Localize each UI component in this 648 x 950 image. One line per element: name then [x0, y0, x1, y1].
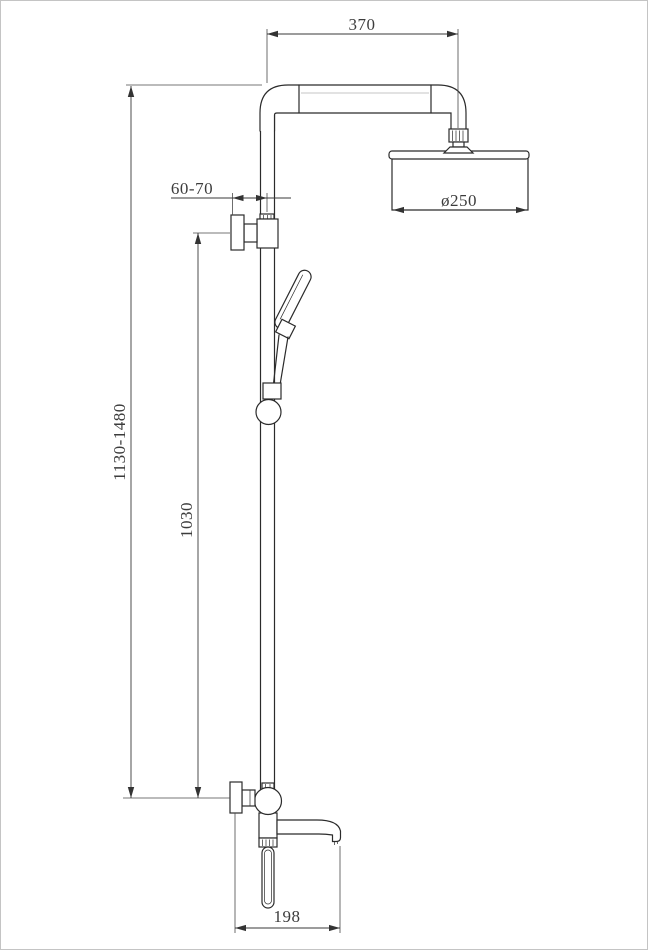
dim-label-head-diameter: ø250	[441, 191, 477, 210]
mixer-handle	[262, 847, 274, 908]
bracket-flange	[231, 215, 244, 250]
hand-shower-wand	[273, 268, 314, 331]
tub-spout	[277, 820, 341, 842]
bracket-connector	[244, 224, 257, 242]
technical-drawing-page: 370 ø250 60-70 1130-1480 1030	[0, 0, 648, 950]
dim-label-overall-height: 1130-1480	[110, 403, 129, 481]
dim-label-bar-height: 1030	[177, 502, 196, 538]
arm-connector-nut	[449, 129, 468, 147]
hand-shower	[272, 268, 313, 397]
bracket-body	[257, 219, 278, 248]
spout-knurl-nut	[259, 838, 277, 847]
shower-system-drawing: 370 ø250 60-70 1130-1480 1030	[1, 1, 648, 950]
bracket-knurl	[260, 214, 274, 219]
connector-nut	[449, 129, 468, 142]
upper-wall-bracket	[231, 214, 278, 250]
slider-knob-wheel	[256, 400, 281, 425]
head-cone	[444, 147, 473, 153]
valve-body	[259, 813, 277, 838]
dimension-bar-height: 1030	[177, 233, 230, 798]
connector-collar	[453, 142, 464, 147]
mixer-assembly	[230, 782, 341, 908]
dim-label-spout-length: 198	[274, 907, 301, 926]
shower-arm-body	[260, 85, 466, 131]
slider-cup	[263, 383, 281, 399]
dim-label-wall-distance: 60-70	[171, 179, 213, 198]
slider-knob	[256, 383, 281, 425]
shower-arm	[260, 85, 466, 131]
lower-wall-flange	[230, 782, 242, 813]
valve-front	[255, 788, 282, 815]
dim-label-arm-length: 370	[349, 15, 376, 34]
lower-connector	[242, 790, 255, 806]
